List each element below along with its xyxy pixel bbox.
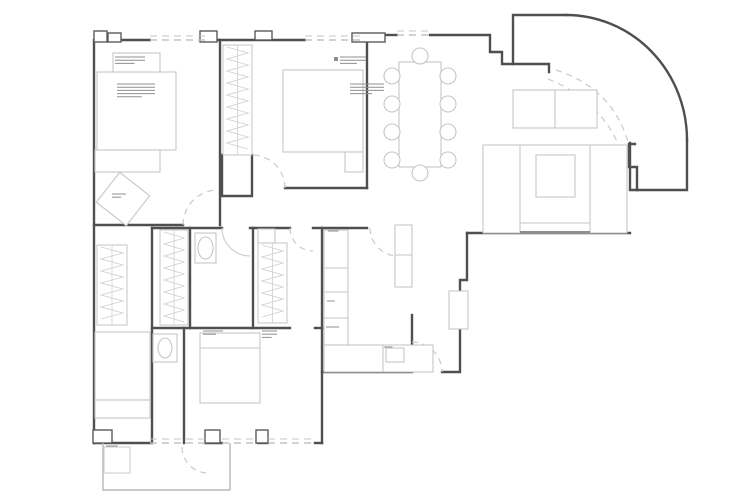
wall-balcony-bottom [637,140,687,190]
hall-cabinet [449,291,468,329]
bed-bedroom3 [200,333,260,403]
dining-chair [440,152,456,168]
wardrobe-box [258,229,275,243]
spec-note-bullet [334,57,338,61]
coffee-table [536,155,575,197]
kitchen-tall-unit [395,225,412,287]
pier-bottom-c [256,430,268,443]
dining-chair [384,68,400,84]
floor-plan-page [0,0,750,500]
kitchen-counter-bottom [324,345,433,372]
dining-chair [384,124,400,140]
door-swing-kitchen-top [370,228,398,256]
bath-sink [158,338,172,358]
wall-closet-niche [222,155,252,196]
door-swing-bedroom2 [252,155,285,188]
pier-top-a [108,33,121,42]
pier-bottom-a [93,430,112,443]
dining-chair [412,165,428,181]
bench-master [95,150,160,172]
bed-bedroom2 [283,70,363,152]
dining-chair [384,152,400,168]
kitchen-sink [386,348,404,362]
dining-table [399,62,441,167]
dining-chair [440,96,456,112]
door-swing-terrace [182,447,208,473]
dining-chair [412,48,428,64]
pier-top-c [255,31,272,40]
nightstand-master [113,53,160,72]
kitchen-counter-left [324,230,348,345]
bench-bedroomBL [95,400,150,418]
wall-balcony-inner [513,64,549,72]
terrace-step [104,447,130,473]
nightstand-bedroom2 [345,152,363,172]
bed-bedroomBL [95,332,150,400]
floor-plan-drawing [0,0,750,500]
dining-chair [440,124,456,140]
dining-chair [384,96,400,112]
dining-chair [440,68,456,84]
toilet-bowl [198,237,213,259]
wall-dining-top-2 [430,15,566,64]
door-swing-bedroom3 [290,228,313,251]
desk-rotated [96,172,149,225]
door-swing-bathroom [222,228,250,256]
pier-top-corner [94,31,107,42]
pier-bottom-b [205,430,220,443]
door-swing-bedroom1 [183,190,218,225]
